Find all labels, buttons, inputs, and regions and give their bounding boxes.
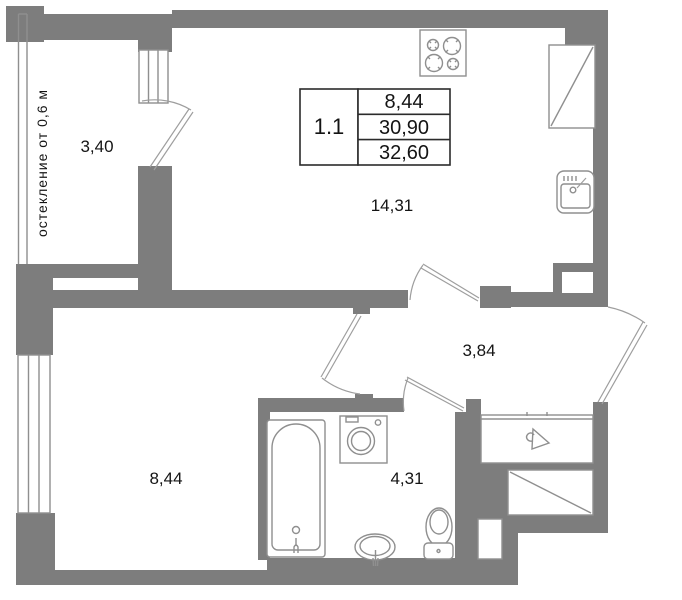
hall-area-label: 3,84 [462,341,495,360]
stove-icon [420,30,466,76]
balcony-door [142,100,193,170]
area-value-1: 8,44 [385,91,424,113]
balcony-partition-window [139,50,168,103]
bathroom-area-label: 4,31 [390,469,423,488]
room-door [321,314,361,394]
balcony-glazing [19,14,28,264]
room-window [18,355,50,513]
bathroom-door [403,377,464,411]
wall-duct-niche-bottom [478,519,502,559]
kitchen-sink-icon [557,171,594,213]
floor-plan-svg: 1.1 8,44 30,90 32,60 3,40 14,31 3,84 8,4… [0,0,682,600]
vent-shaft-kitchen [549,45,595,128]
wardrobe [481,412,593,463]
entrance-door [598,307,647,404]
bathtub-icon [267,420,325,557]
area-value-3: 32,60 [379,142,429,164]
toilet-icon [424,508,453,559]
kitchen-living-area-label: 14,31 [371,196,414,215]
wall-duct-niche-top [562,272,593,293]
room-area-label: 8,44 [149,469,182,488]
area-value-2: 30,90 [379,117,429,139]
vent-shaft-entry [508,470,593,515]
kitchen-door [410,264,479,301]
info-table: 1.1 8,44 30,90 32,60 [300,89,450,165]
balcony-area-label: 3,40 [80,137,113,156]
washing-machine-icon [340,416,387,463]
floor-plan: 1.1 8,44 30,90 32,60 3,40 14,31 3,84 8,4… [0,0,682,600]
glazing-note: остекление от 0,6 м [34,89,50,237]
apartment-number: 1.1 [314,114,345,139]
